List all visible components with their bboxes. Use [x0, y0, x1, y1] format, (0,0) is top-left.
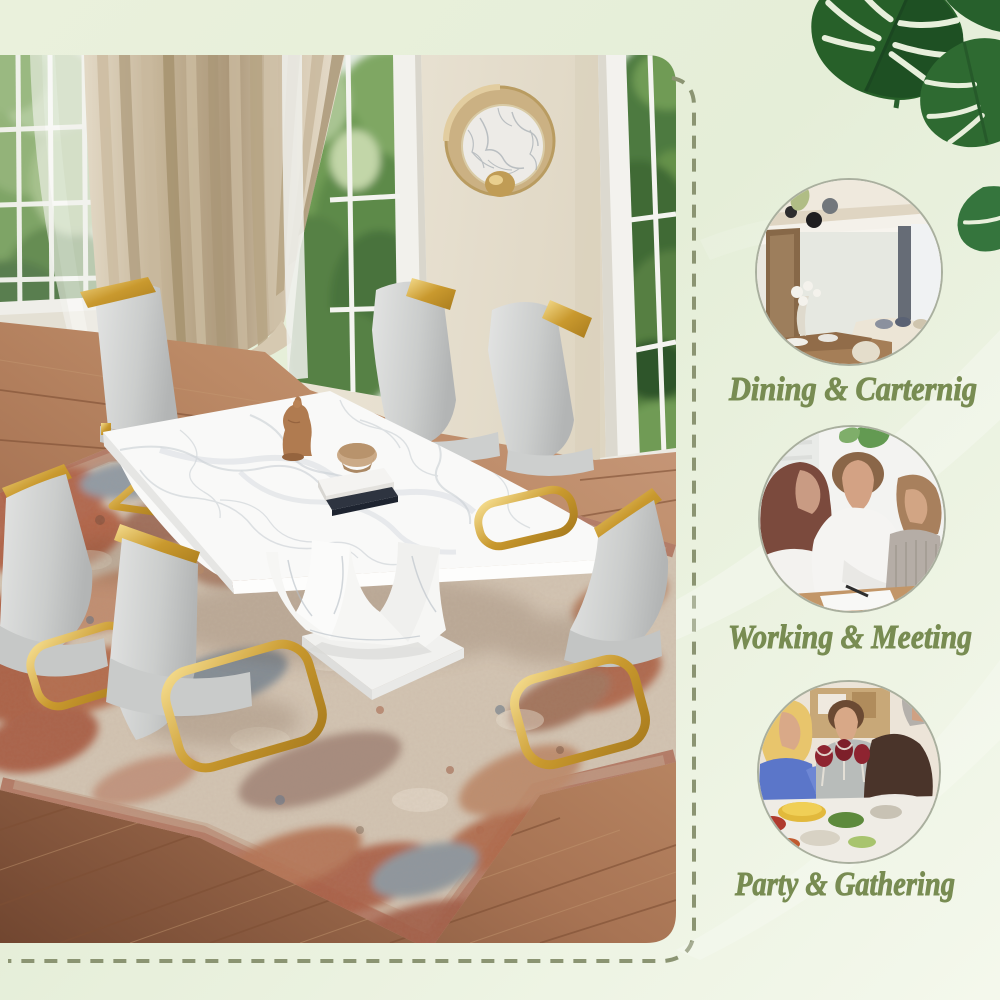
svg-text:Working & Meeting: Working & Meeting — [728, 619, 972, 656]
svg-text:Dining & Carternig: Dining & Carternig — [728, 371, 977, 408]
svg-text:Party & Gathering: Party & Gathering — [734, 866, 955, 903]
